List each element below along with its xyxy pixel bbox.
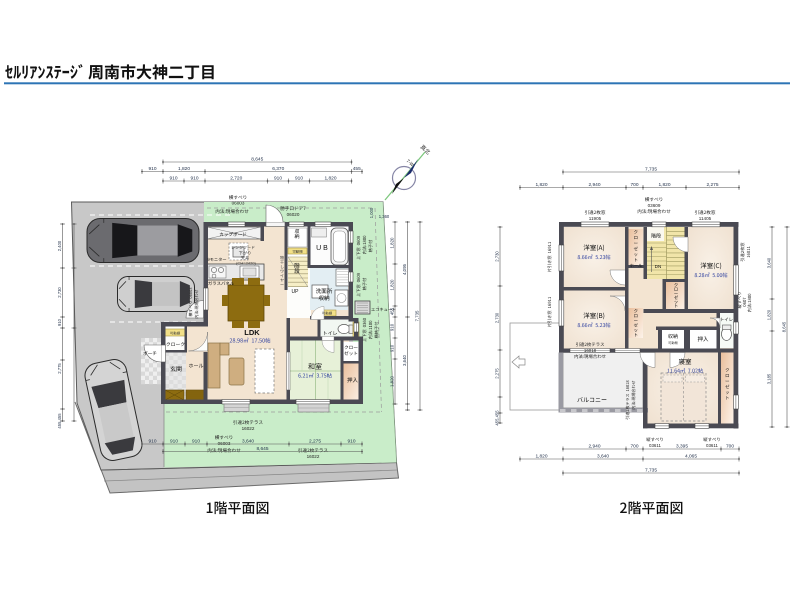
svg-text:11905: 11905 [589, 216, 602, 221]
svg-text:910: 910 [347, 439, 355, 445]
svg-text:3,395: 3,395 [676, 444, 688, 450]
svg-text:2,730: 2,730 [57, 287, 62, 298]
svg-text:2,720: 2,720 [230, 176, 242, 182]
svg-text:06020: 06020 [287, 212, 300, 217]
svg-text:7,735: 7,735 [645, 468, 657, 474]
svg-text:910: 910 [148, 166, 156, 172]
svg-text:700: 700 [726, 444, 734, 450]
svg-text:700: 700 [630, 444, 638, 450]
svg-text:910: 910 [57, 318, 62, 326]
svg-text:1,820: 1,820 [767, 309, 772, 320]
svg-text:4,065: 4,065 [685, 454, 697, 460]
svg-text:LDK: LDK [244, 328, 260, 337]
svg-text:(CH=2420): (CH=2420) [236, 261, 256, 266]
svg-text:03609: 03609 [648, 203, 661, 208]
svg-text:1,820: 1,820 [658, 182, 670, 188]
svg-text:3,185: 3,185 [767, 373, 772, 384]
svg-text:2,775: 2,775 [57, 363, 62, 374]
svg-text:700: 700 [630, 182, 638, 188]
svg-text:2,400: 2,400 [57, 240, 62, 251]
svg-text:3,640: 3,640 [767, 257, 772, 268]
svg-text:8,645: 8,645 [782, 321, 787, 332]
svg-text:1,000: 1,000 [369, 207, 374, 218]
svg-text:1,820: 1,820 [535, 182, 547, 188]
svg-text:1,820: 1,820 [390, 237, 395, 249]
svg-text:16018: 16018 [584, 348, 597, 353]
svg-text:06003: 06003 [232, 201, 245, 206]
svg-text:03611: 03611 [706, 443, 718, 448]
svg-text:16022: 16022 [242, 426, 255, 431]
svg-text:910: 910 [190, 176, 198, 182]
svg-text:910: 910 [295, 176, 303, 182]
svg-text:455,455: 455,455 [495, 410, 500, 426]
svg-text:U B: U B [316, 245, 328, 252]
svg-text:7,735: 7,735 [415, 310, 420, 322]
svg-text:910: 910 [192, 439, 200, 445]
svg-text:910: 910 [390, 344, 395, 352]
svg-text:1,360: 1,360 [379, 214, 390, 219]
svg-text:3,640: 3,640 [242, 439, 254, 445]
svg-text:1,820: 1,820 [324, 176, 336, 182]
svg-text:4,095: 4,095 [402, 263, 407, 275]
svg-text:11405: 11405 [699, 216, 712, 221]
svg-text:7,735: 7,735 [645, 167, 657, 173]
svg-text:2,730: 2,730 [495, 251, 500, 262]
svg-text:2,275: 2,275 [309, 439, 321, 445]
svg-text:3,640: 3,640 [597, 454, 609, 460]
svg-text:910: 910 [274, 176, 282, 182]
svg-text:910: 910 [170, 439, 178, 445]
svg-text:2,275: 2,275 [706, 182, 718, 188]
svg-text:3,640: 3,640 [402, 354, 407, 366]
svg-text:910: 910 [390, 323, 395, 331]
svg-text:2,275: 2,275 [495, 368, 500, 379]
svg-text:6,370: 6,370 [272, 166, 284, 172]
svg-text:1,820: 1,820 [390, 279, 395, 291]
svg-text:8,645: 8,645 [256, 446, 268, 452]
svg-text:1,820: 1,820 [178, 166, 190, 172]
svg-text:455,455: 455,455 [57, 413, 62, 429]
svg-text:DN: DN [655, 264, 662, 269]
svg-text:8,645: 8,645 [251, 157, 263, 163]
svg-text:UP: UP [292, 289, 300, 295]
svg-text:455: 455 [353, 166, 361, 172]
svg-text:1,820: 1,820 [390, 375, 395, 387]
svg-text:455: 455 [390, 307, 395, 315]
svg-text:2,940: 2,940 [588, 444, 600, 450]
svg-text:910: 910 [169, 176, 177, 182]
svg-text:03611: 03611 [649, 443, 661, 448]
svg-text:06003: 06003 [218, 441, 231, 446]
svg-text:16022: 16022 [307, 454, 320, 459]
svg-text:1,820: 1,820 [535, 454, 547, 460]
svg-text:2,940: 2,940 [588, 182, 600, 188]
svg-text:910: 910 [148, 439, 156, 445]
svg-text:2,730: 2,730 [495, 312, 500, 323]
